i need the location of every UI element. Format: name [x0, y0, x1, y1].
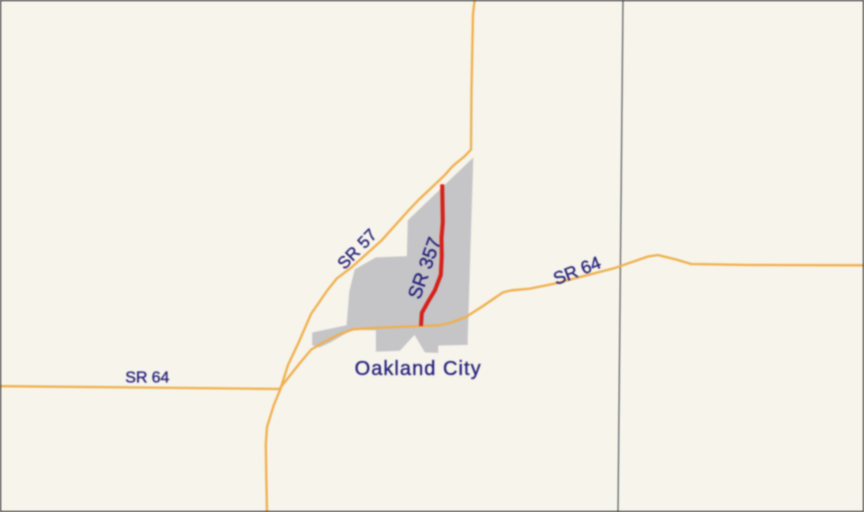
svg-text:Oakland City: Oakland City — [355, 358, 482, 380]
svg-text:SR 64: SR 64 — [125, 370, 169, 387]
